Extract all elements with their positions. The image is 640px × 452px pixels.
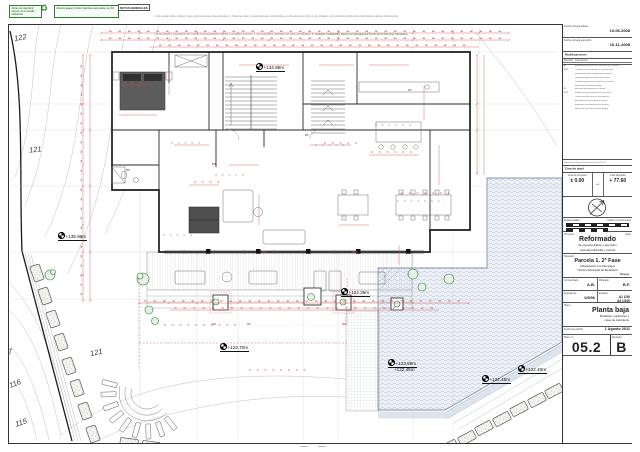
sheet-number-label: Plano nº <box>563 335 574 339</box>
level-value: +124.39m <box>349 290 370 295</box>
level-annotation: +122.40m <box>518 365 547 374</box>
file-value: 1/9/96 <box>563 295 597 300</box>
scale-label: Escala gráfica <box>563 218 581 222</box>
relative-value: ± 0.00 <box>563 178 592 184</box>
scale-units: Cotas en centímetros <box>606 218 632 222</box>
sheet-revision-cell: Revisión B <box>611 335 632 355</box>
file-scale-row: Expediente 1/9/96 Escalas A1 1/50 A3 1/1… <box>563 291 632 303</box>
room-tag: P1 <box>305 133 309 137</box>
fold-mark <box>318 446 326 447</box>
level-value: +123.70m <box>228 345 249 350</box>
file-number: Expediente 1/9/96 <box>563 291 598 302</box>
recycle-icon: ♻ <box>40 3 48 14</box>
paved-walkway <box>346 311 379 411</box>
level-marker-icon <box>482 375 489 382</box>
credits-row: Comprobado A.B. Dibujado B.F. <box>563 278 632 291</box>
room-tag: A1 <box>247 322 251 326</box>
level-title: Cota de nivel <box>563 166 586 171</box>
room-tag: P3 <box>126 168 130 172</box>
absolute-value: + 77.60 <box>604 178 633 184</box>
radial-steps <box>101 380 177 440</box>
level-marker-icon <box>518 365 525 372</box>
sheet-number-cell: Plano nº 05.2 <box>563 335 611 355</box>
title-block: Fecha entrega básico 10-06-2008 Fecha en… <box>562 24 632 444</box>
sheet-title-cell: Plano Planta baja Mobiliario, superficie… <box>563 303 632 327</box>
sheet-name: Planta baja <box>563 307 632 314</box>
revisions-header: Modificaciones <box>563 52 632 59</box>
edition-value: 1 Agosto 2011 <box>605 327 632 331</box>
level-value: +135.90m <box>66 234 87 239</box>
credit-comprobado: Comprobado A.B. <box>563 278 598 290</box>
level-annotation: +122.45m <box>482 375 511 384</box>
sheet-number-row: Plano nº 05.2 Revisión B <box>563 335 632 356</box>
project-label: Proyecto <box>563 232 575 236</box>
edition-label: Fecha de edición <box>563 328 584 332</box>
project-line1: de proyecto básico y ejecución <box>563 243 632 247</box>
level-value: +122.45m <box>490 377 511 382</box>
room-tag: V1 <box>408 88 412 92</box>
room-tag: A3 <box>342 322 346 326</box>
relative-level: Cota de proyecto ± 0.00 <box>563 173 593 196</box>
floor-plan-drawing <box>9 25 562 443</box>
level-annotation: +135.90m <box>58 232 87 241</box>
project-line2: vivienda unifamiliar y piscina <box>563 248 632 252</box>
contour-label: 121 <box>29 144 42 154</box>
drawing-scale: Escalas A1 1/50 A3 1/100 <box>598 291 632 302</box>
notes-title: NOTAS GENERALES <box>118 4 150 11</box>
sheet-revision: B <box>611 339 632 355</box>
credit-value: A.B. <box>563 282 597 287</box>
rev-desc: Ajuste de vaso de piscina y playas <box>575 108 608 112</box>
revisions-title: Modificaciones <box>563 52 589 57</box>
scale-bar <box>566 223 629 228</box>
room-tag: A2 <box>212 322 216 326</box>
notes-line: 1. No escalar sobre el plano: rigen unic… <box>154 15 399 18</box>
delivery-value: 10-06-2008 <box>563 28 632 33</box>
level-marker-icon <box>388 359 395 366</box>
sheet-revision-label: Revisión <box>611 335 623 339</box>
project-name: Reformado <box>563 236 632 243</box>
credit-value: B.F. <box>598 282 632 287</box>
fold-mark <box>300 446 308 447</box>
relative-label: Cota de proyecto <box>563 173 592 177</box>
graphic-scale: Escala gráfica Cotas en centímetros <box>563 218 632 232</box>
scale-a3: A3 1/100 <box>598 299 632 303</box>
room-tag: P2 <box>212 162 216 166</box>
room-tag: PV2 <box>352 250 358 254</box>
level-value: +123.89m <box>396 361 417 366</box>
level-annotation: +123.70m <box>220 343 249 352</box>
level-marker-icon <box>220 343 227 350</box>
house-walls <box>112 52 470 254</box>
delivery-row-ejecucion: Fecha entrega ejecución 16-11-2008 <box>563 38 632 52</box>
absolute-label: Cota absoluta <box>604 173 633 177</box>
planters <box>210 288 403 313</box>
level-marker-icon <box>58 232 65 239</box>
fase-label: Fase <box>624 232 632 236</box>
level-header: Cota de nivel <box>563 166 632 173</box>
level-value: +122.45m <box>394 367 415 372</box>
footnote-text: Replanteo sobre parcela con fecha 6-05-1… <box>563 162 606 164</box>
sheet-line2: cotas de carpintería <box>563 318 632 322</box>
level-value: +134.95m <box>264 65 285 70</box>
rev-id <box>563 108 575 112</box>
sheet-top-strip: Antes de imprimir piense en el medio amb… <box>8 3 558 17</box>
revisions-table: AAmpliación de porche en alzado sur y pi… <box>563 65 632 160</box>
north-arrow-icon <box>563 197 631 218</box>
credit-dibujado: Dibujado B.F. <box>598 278 632 290</box>
col-revision: Revisión <box>563 59 575 62</box>
sheet-number: 05.2 <box>563 339 610 355</box>
absolute-level: Cota absoluta + 77.60 <box>604 173 633 196</box>
location-line3: Málaga <box>563 272 632 276</box>
room-tag: PV1 <box>262 250 268 254</box>
level-value: +122.40m <box>526 367 547 372</box>
empty-cell <box>563 356 632 443</box>
col-descripcion: Descripción <box>575 59 588 62</box>
general-notes: NOTAS GENERALES 1. No escalar sobre el p… <box>118 4 558 16</box>
north-arrow-cell <box>563 197 632 218</box>
location-cell: Situación Parcela 1. 2ª Fase Urbanizació… <box>563 254 632 278</box>
project-cell: Proyecto Fase Reformado de proyecto bási… <box>563 232 632 254</box>
level-marker-icon <box>256 63 263 70</box>
level-annotation: +124.39m <box>341 288 370 297</box>
level-annotation: +134.95m <box>256 63 285 72</box>
drawing-sheet: Antes de imprimir piense en el medio amb… <box>0 0 640 452</box>
delivery-value: 16-11-2008 <box>563 42 632 47</box>
level-annotation: +122.45m <box>394 367 416 373</box>
eco-badge-1: Antes de imprimir piense en el medio amb… <box>9 5 42 18</box>
delivery-row-basico: Fecha entrega básico 10-06-2008 <box>563 24 632 38</box>
level-marker-icon <box>341 288 348 295</box>
eco-badge-2: Ahorre papel y tinta: imprima este plano… <box>54 5 119 18</box>
edition-date-row: Fecha de edición 1 Agosto 2011 <box>563 327 632 335</box>
level-datum: Cota de proyecto ± 0.00 → Cota absoluta … <box>563 173 632 197</box>
arrow-right-icon: → <box>593 173 604 196</box>
